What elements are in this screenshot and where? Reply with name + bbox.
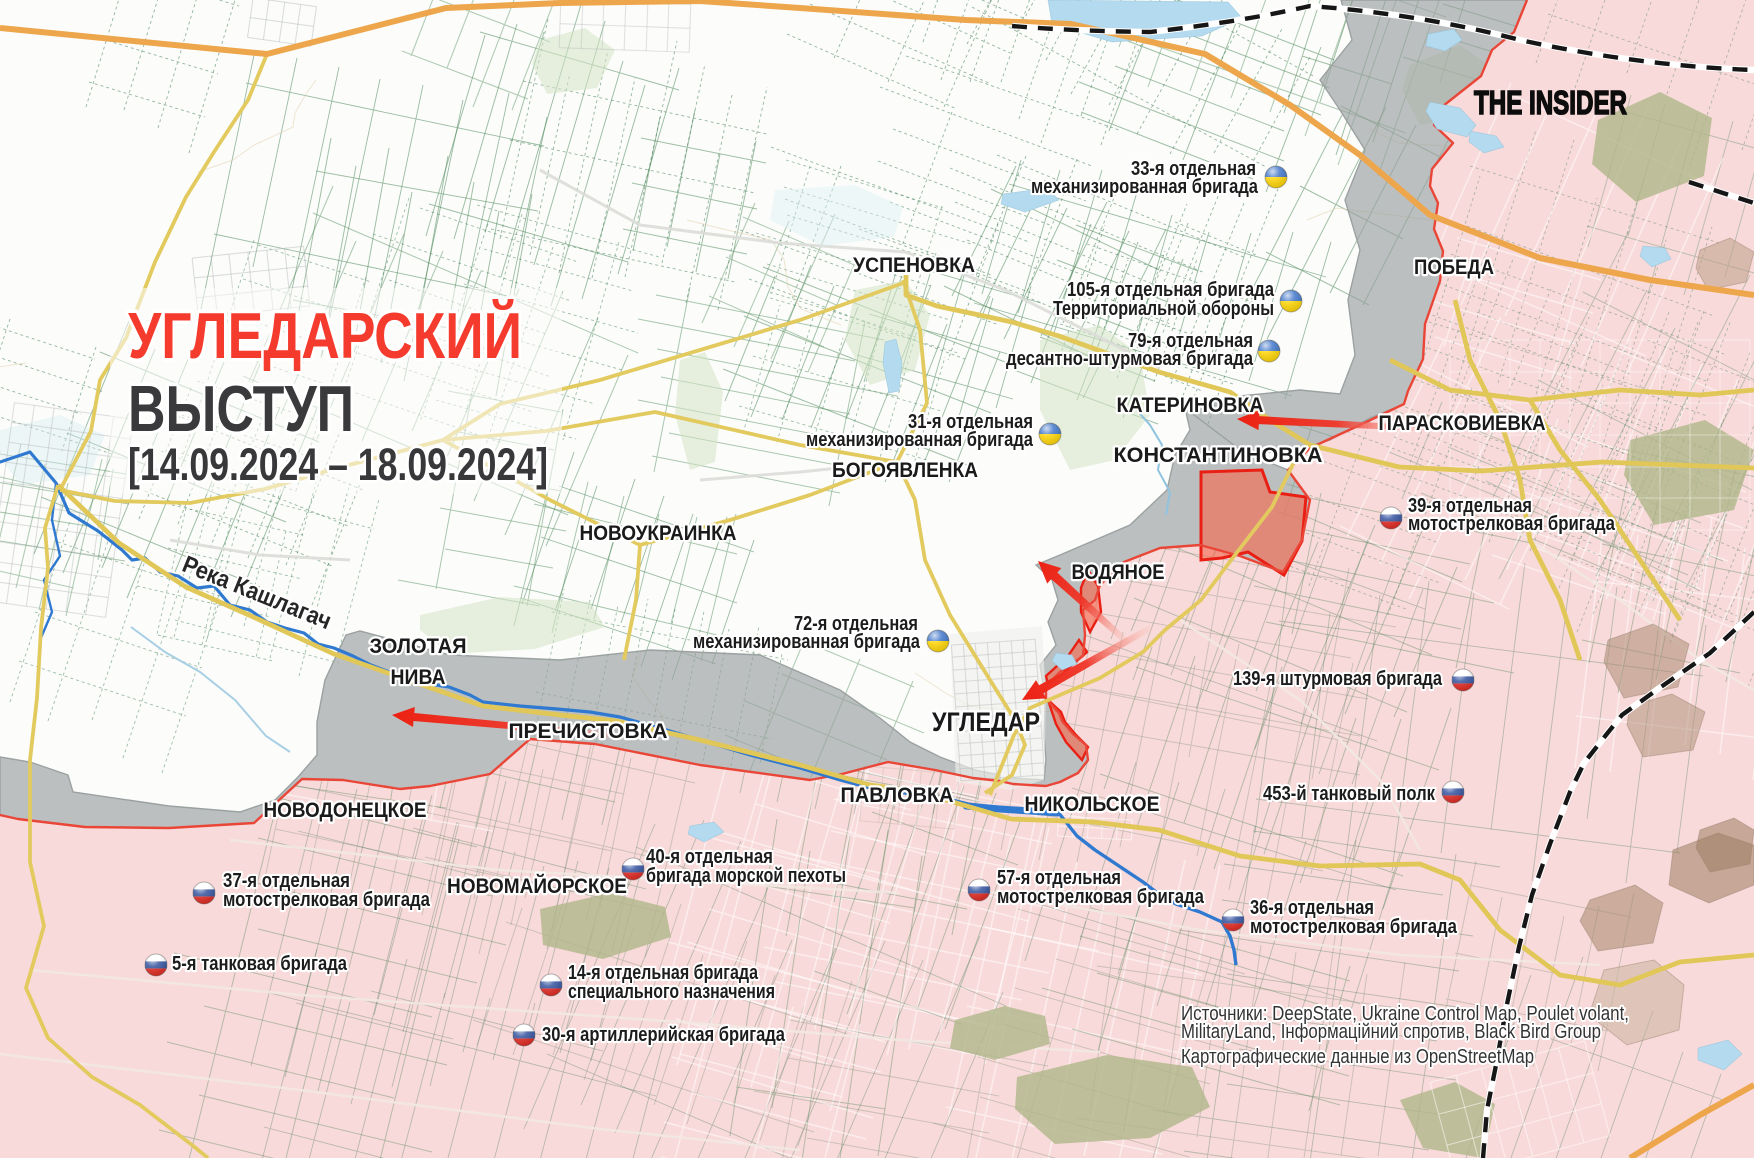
svg-text:НОВОМАЙОРСКОЕ: НОВОМАЙОРСКОЕ: [447, 874, 627, 898]
svg-text:КОНСТАНТИНОВКА: КОНСТАНТИНОВКА: [1114, 444, 1323, 467]
svg-text:мотострелковая бригада: мотострелковая бригада: [1250, 916, 1458, 938]
svg-text:Картографические данные из Ope: Картографические данные из OpenStreetMap: [1181, 1046, 1534, 1068]
svg-text:УГЛЕДАРСКИЙ: УГЛЕДАРСКИЙ: [128, 299, 522, 372]
svg-text:30-я артиллерийская бригада: 30-я артиллерийская бригада: [542, 1024, 786, 1046]
svg-text:НИВА: НИВА: [391, 666, 446, 689]
svg-text:453-й танковый полк: 453-й танковый полк: [1263, 783, 1436, 805]
svg-text:механизированная бригада: механизированная бригада: [806, 429, 1034, 451]
svg-text:ВОДЯНОЕ: ВОДЯНОЕ: [1072, 561, 1165, 584]
svg-text:Территориальной обороны: Территориальной обороны: [1053, 298, 1274, 320]
svg-text:ПАРАСКОВИЕВКА: ПАРАСКОВИЕВКА: [1379, 412, 1546, 435]
svg-text:ПАВЛОВКА: ПАВЛОВКА: [841, 784, 954, 807]
svg-text:КАТЕРИНОВКА: КАТЕРИНОВКА: [1117, 394, 1264, 417]
svg-text:[14.09.2024 – 18.09.2024]: [14.09.2024 – 18.09.2024]: [128, 439, 548, 490]
svg-text:НОВОДОНЕЦКОЕ: НОВОДОНЕЦКОЕ: [264, 799, 427, 822]
svg-text:THE INSIDER: THE INSIDER: [1474, 84, 1627, 121]
svg-text:НОВОУКРАИНКА: НОВОУКРАИНКА: [580, 522, 737, 545]
svg-text:мотострелковая бригада: мотострелковая бригада: [1408, 513, 1616, 535]
svg-text:УГЛЕДАР: УГЛЕДАР: [932, 707, 1040, 737]
svg-text:механизированная бригада: механизированная бригада: [693, 631, 921, 653]
svg-text:специального назначения: специального назначения: [568, 981, 775, 1003]
svg-text:ВЫСТУП: ВЫСТУП: [128, 372, 354, 445]
svg-text:БОГОЯВЛЕНКА: БОГОЯВЛЕНКА: [832, 459, 978, 482]
svg-text:мотострелковая бригада: мотострелковая бригада: [997, 886, 1205, 908]
svg-text:ПРЕЧИСТОВКА: ПРЕЧИСТОВКА: [509, 720, 668, 743]
svg-text:139-я штурмовая бригада: 139-я штурмовая бригада: [1233, 668, 1443, 690]
svg-text:УСПЕНОВКА: УСПЕНОВКА: [853, 254, 975, 277]
svg-text:5-я танковая бригада: 5-я танковая бригада: [172, 953, 348, 975]
svg-text:НИКОЛЬСКОЕ: НИКОЛЬСКОЕ: [1025, 793, 1160, 816]
svg-text:мотострелковая бригада: мотострелковая бригада: [223, 889, 431, 911]
svg-text:механизированная бригада: механизированная бригада: [1031, 176, 1259, 198]
svg-text:ЗОЛОТАЯ: ЗОЛОТАЯ: [370, 635, 467, 658]
svg-text:бригада морской пехоты: бригада морской пехоты: [646, 865, 846, 887]
svg-text:MilitaryLand, Інформаційний сп: MilitaryLand, Інформаційний спротив, Bla…: [1181, 1021, 1601, 1043]
svg-text:ПОБЕДА: ПОБЕДА: [1414, 256, 1494, 279]
svg-text:десантно-штурмовая бригада: десантно-штурмовая бригада: [1006, 348, 1254, 370]
